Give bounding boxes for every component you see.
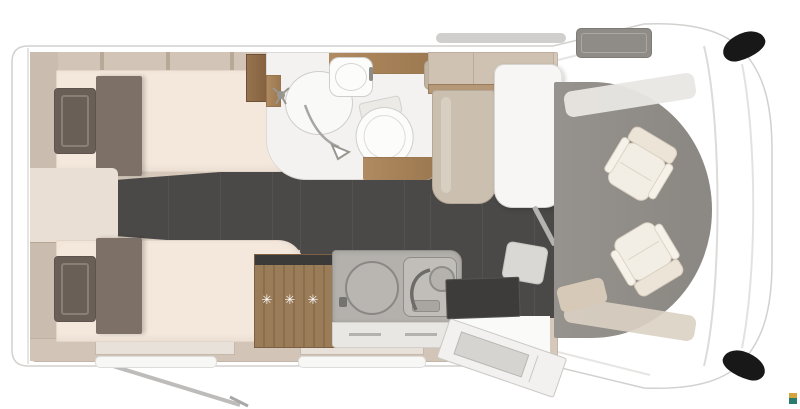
- exterior-skirt-bar-right: [298, 356, 426, 368]
- kitchen-sink: [345, 261, 399, 315]
- entrance-doormat: [445, 277, 520, 320]
- pillow-stitch: [61, 263, 89, 315]
- awning-rail: [436, 33, 566, 43]
- washbasin-bowl: [335, 63, 367, 91]
- twin-bed-top-pillow: [54, 88, 96, 154]
- bathroom-wall-wood-right: [363, 157, 435, 180]
- door-panel-line: [528, 356, 538, 383]
- twin-bed-bottom-pillow: [54, 256, 96, 322]
- shower-head-icon: [269, 83, 293, 107]
- bathroom: [266, 52, 436, 180]
- table: [494, 64, 563, 208]
- aisle-floor-corridor: [300, 172, 434, 254]
- skylight-frame: [581, 33, 647, 53]
- exterior-skirt-bar-left: [95, 356, 217, 368]
- washbasin: [329, 57, 373, 97]
- wardrobe-divider: [30, 242, 58, 243]
- twin-bed-bottom-runner: [96, 238, 142, 334]
- floorplan-canvas: ✳ ✳ ✳: [0, 0, 800, 409]
- sink-faucet: [339, 297, 347, 307]
- pillow-stitch: [61, 95, 89, 147]
- kitchen-counter: [332, 250, 462, 324]
- bench-cushion-highlight: [441, 97, 451, 193]
- freezer-rating-symbols: ✳ ✳ ✳: [257, 293, 327, 308]
- dinette-bench: [432, 90, 496, 204]
- fridge-freezer: ✳ ✳ ✳: [254, 254, 336, 348]
- window-bottom-left: [95, 341, 235, 355]
- drawer-handle: [349, 333, 381, 336]
- twin-bed-top-runner: [96, 76, 142, 176]
- washbasin-faucet: [369, 67, 373, 81]
- bed-head-platform: [30, 168, 118, 242]
- fridge-top-vent: [255, 255, 333, 265]
- rear-support-strut: [100, 362, 240, 405]
- watermark-logo-teal: [789, 398, 797, 404]
- toilet-seat: [360, 111, 410, 163]
- drawer-handle: [405, 333, 437, 336]
- kitchen: ✳ ✳ ✳: [254, 250, 460, 346]
- cab-skylight: [576, 28, 652, 58]
- watermark-logo: [789, 393, 797, 404]
